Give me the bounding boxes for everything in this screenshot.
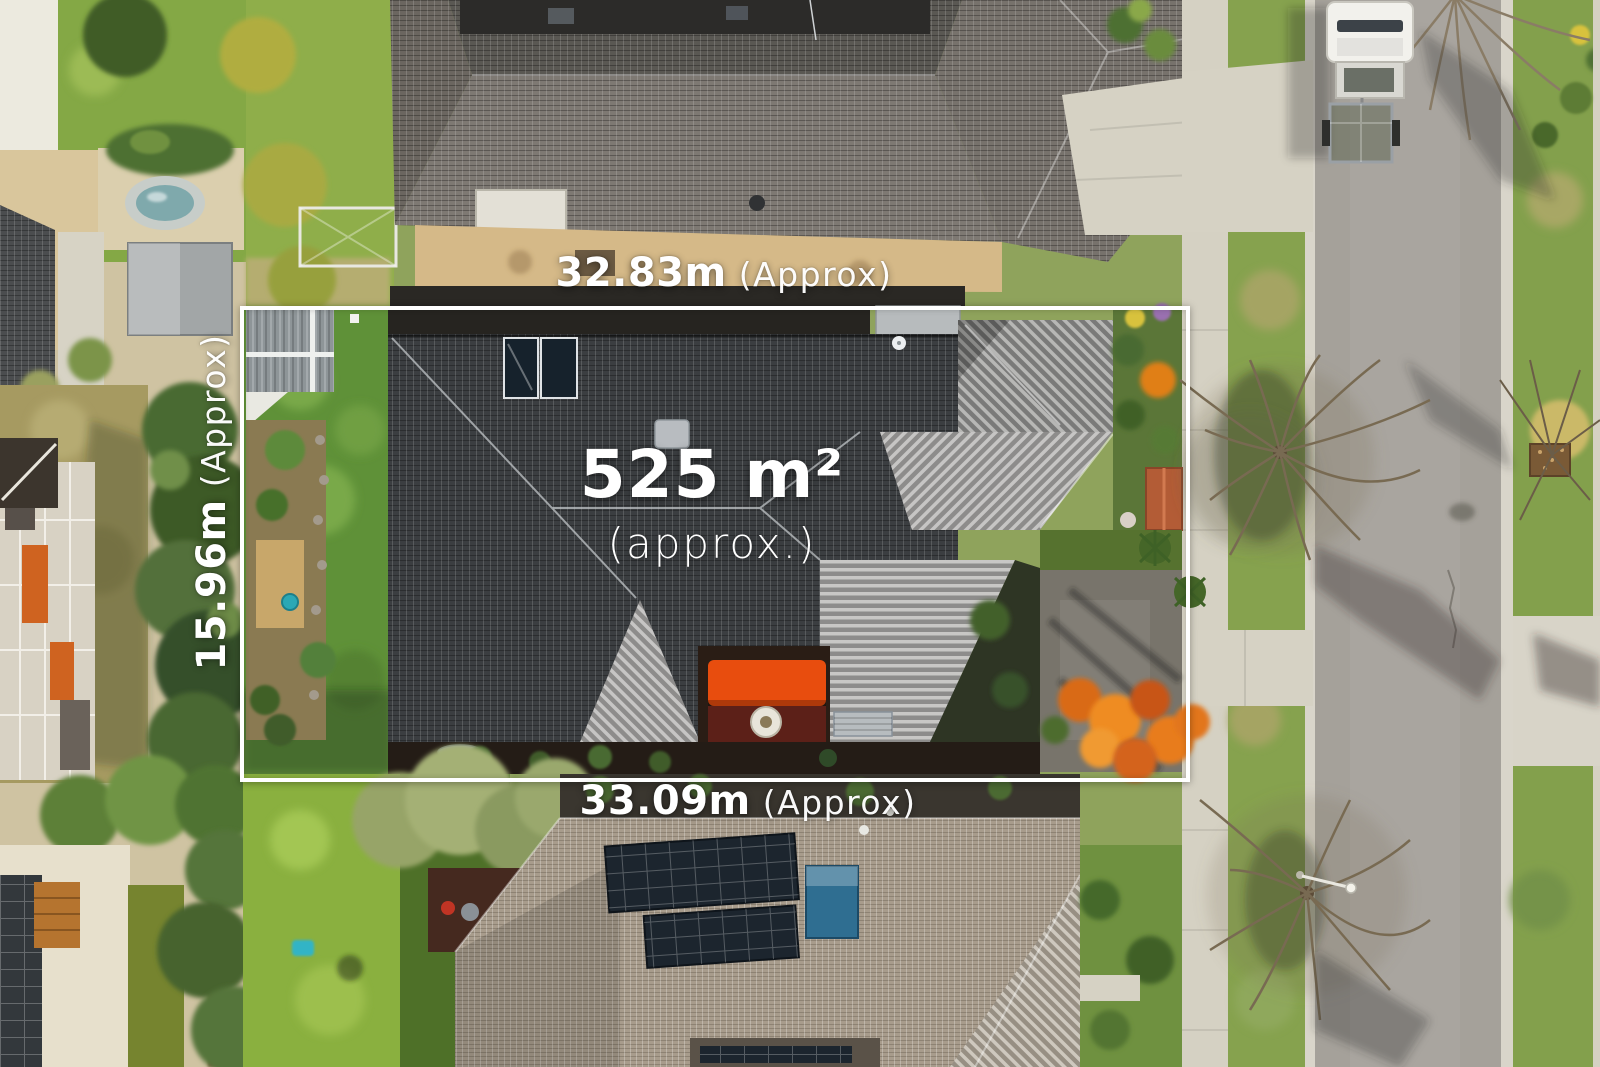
left-neighbour-yards xyxy=(0,0,279,1067)
crossover-subject xyxy=(1182,630,1313,706)
aerial-property-photo: 32.83m (Approx) 33.09m (Approx) 15.96m (… xyxy=(0,0,1600,1067)
side-garden-bed xyxy=(246,420,336,746)
bottom-neighbour xyxy=(243,745,1182,1067)
flat-garage-roof xyxy=(876,306,960,336)
footpath-right xyxy=(1593,0,1600,1067)
bottom-house-roof xyxy=(455,808,1080,1067)
blue-tarp xyxy=(292,940,314,956)
subject-property xyxy=(243,303,1210,782)
top-neighbour xyxy=(220,0,1313,314)
orange-shade-sail xyxy=(708,660,826,706)
roof-unit xyxy=(655,420,689,448)
parked-ute-with-trailer xyxy=(1288,2,1413,162)
construction-house xyxy=(0,438,95,780)
garden-shed xyxy=(128,243,232,335)
aerial-scene xyxy=(0,0,1600,1067)
bottom-house-front-yard xyxy=(1080,845,1182,1067)
skylights xyxy=(504,338,577,398)
solar-hot-water-panel xyxy=(806,866,858,938)
spa-hot-tub xyxy=(125,176,205,230)
